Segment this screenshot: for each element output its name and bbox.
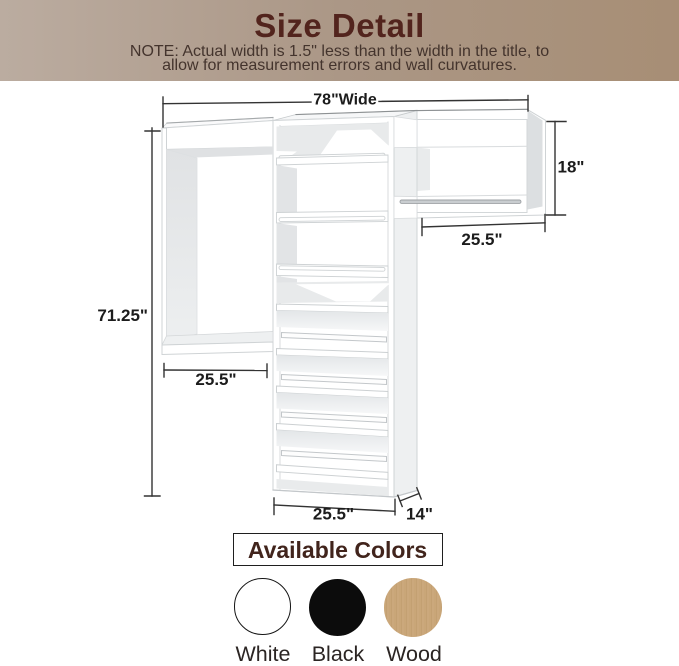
svg-text:25.5": 25.5" — [195, 370, 236, 389]
svg-text:71.25": 71.25" — [97, 306, 148, 325]
svg-text:14": 14" — [406, 505, 433, 524]
svg-text:18": 18" — [558, 158, 585, 177]
svg-text:78"Wide: 78"Wide — [313, 92, 377, 109]
svg-text:25.5": 25.5" — [313, 505, 354, 524]
svg-text:25.5": 25.5" — [461, 230, 502, 249]
